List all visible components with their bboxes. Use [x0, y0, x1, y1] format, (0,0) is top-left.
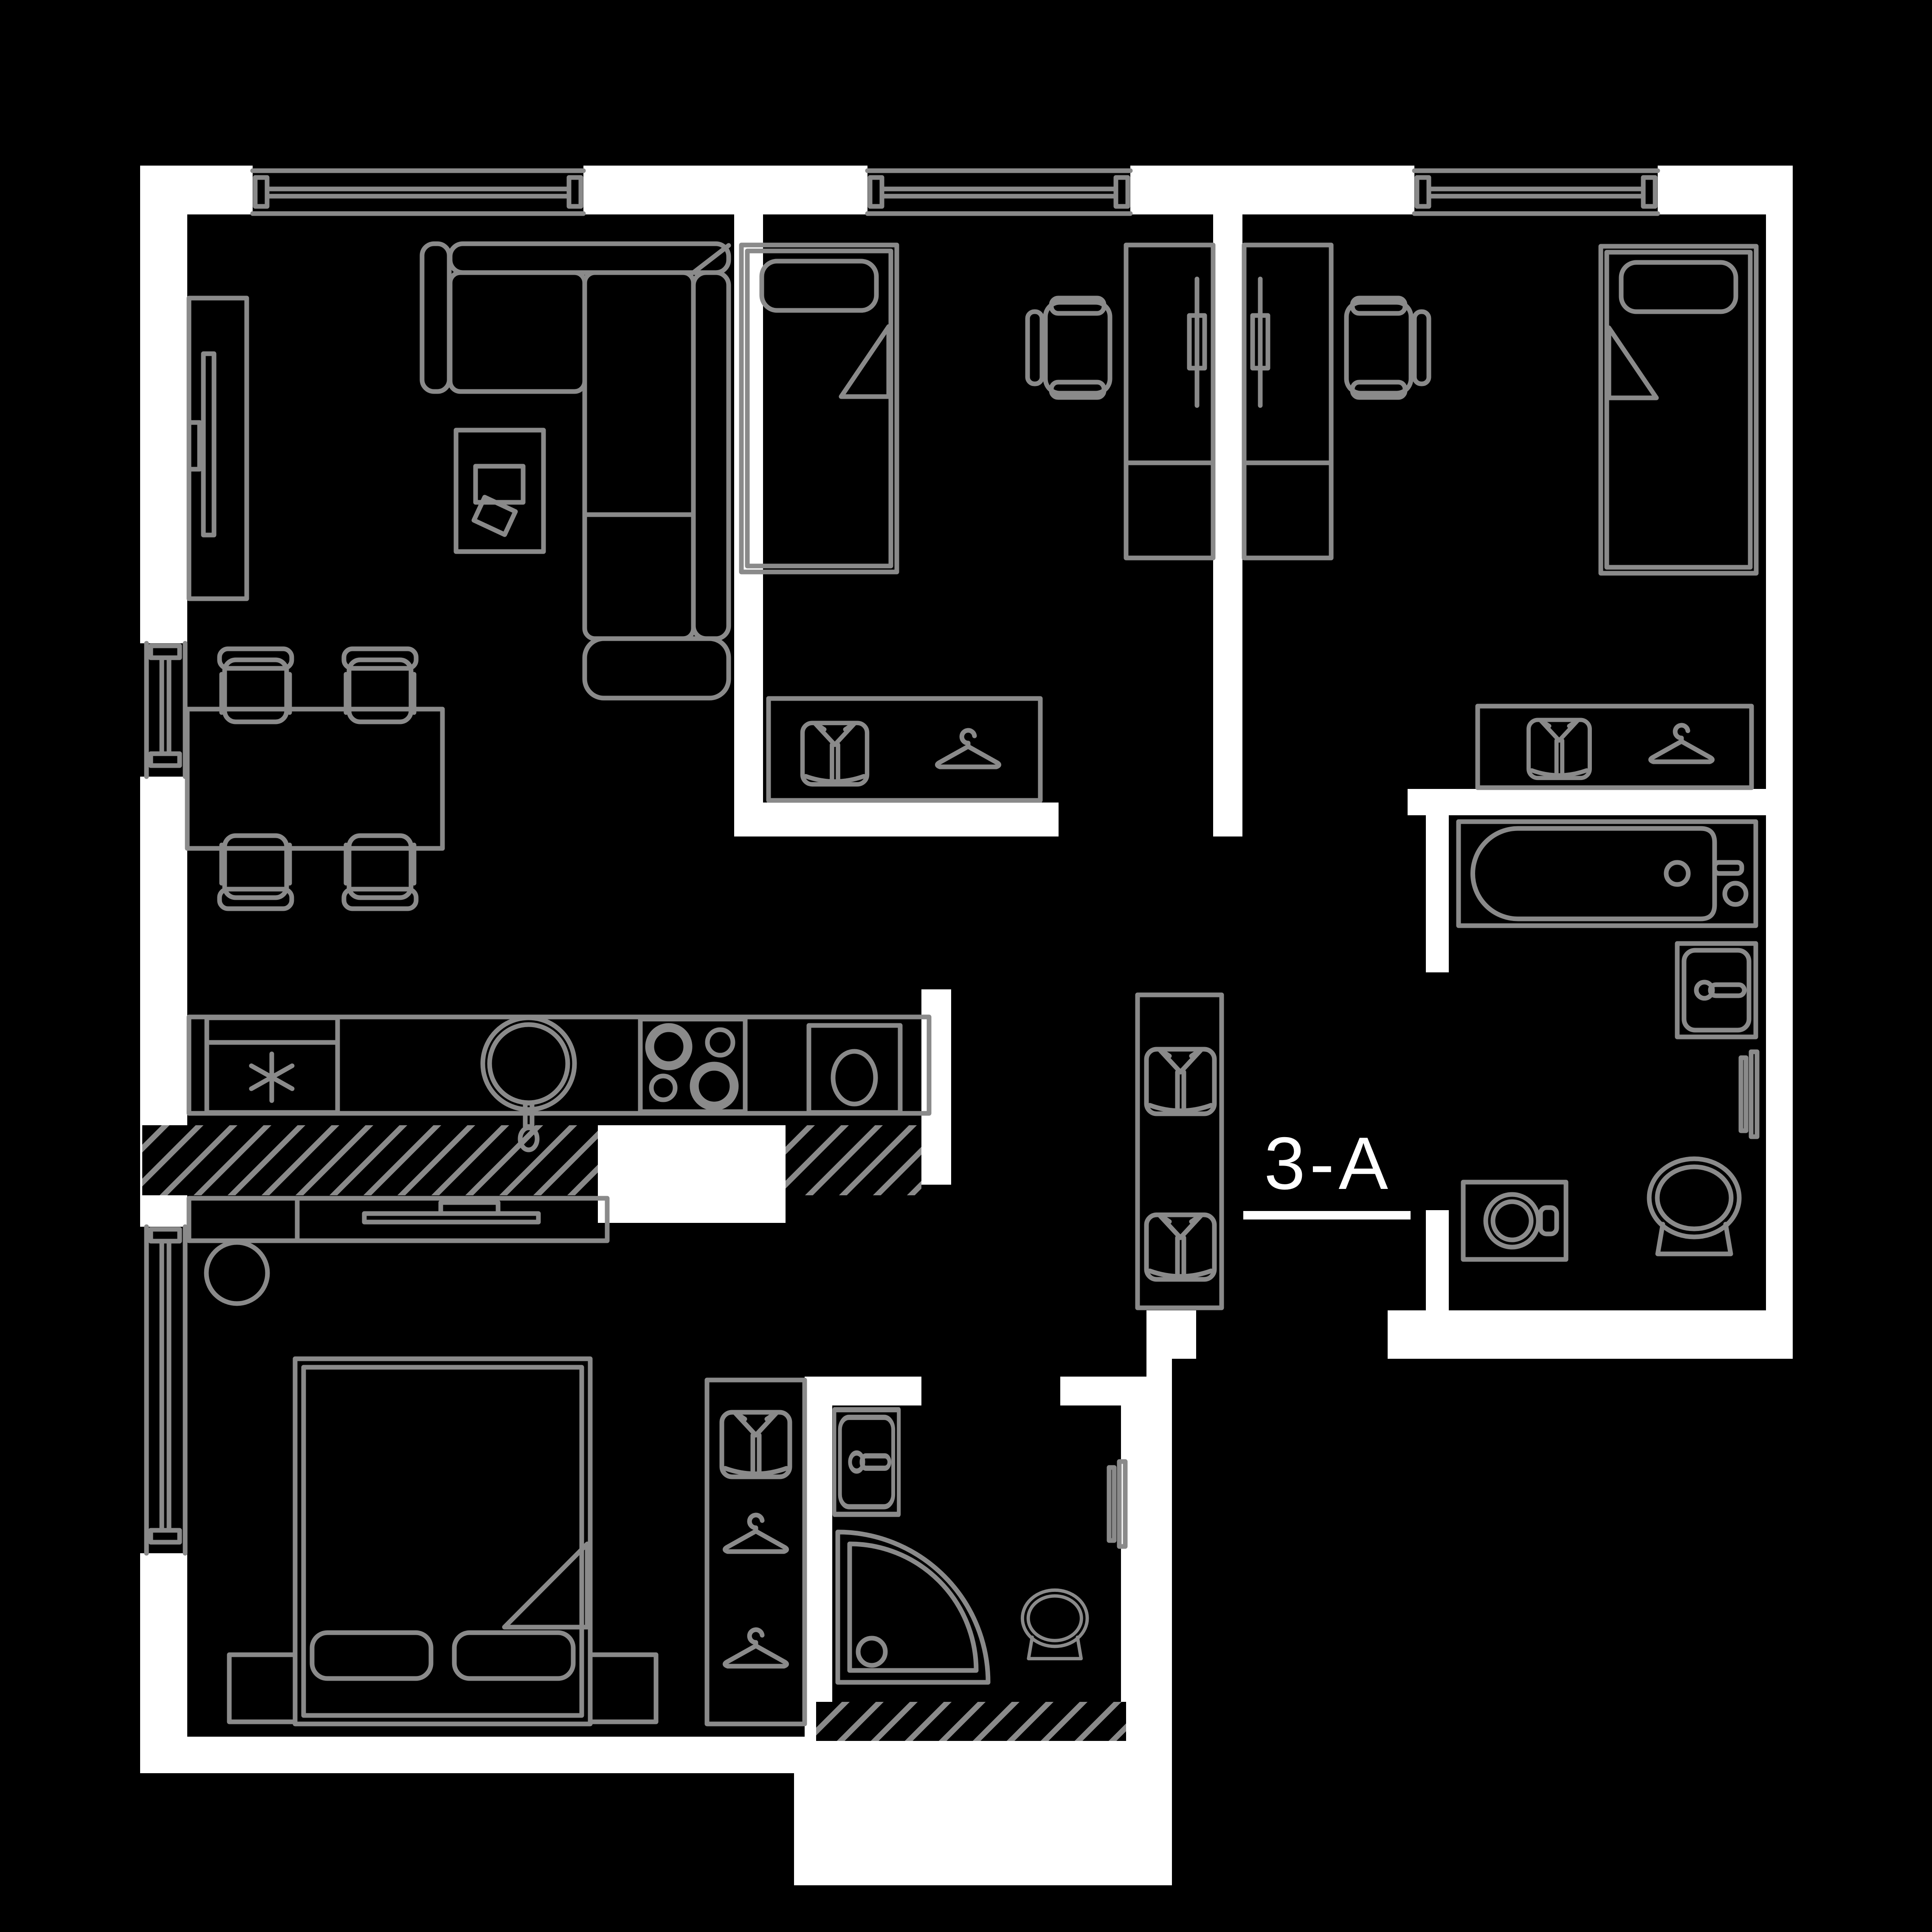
wall-bath2-top-1: [805, 1377, 921, 1405]
wall-corridor-stub: [1146, 1310, 1196, 1359]
wall-right: [1766, 166, 1793, 1359]
hatched-partition-2: [786, 1125, 921, 1195]
unit-label-underline: [1243, 1211, 1411, 1219]
floor-plan-canvas: 3-A: [0, 0, 1932, 1932]
wall-left-1: [140, 166, 187, 643]
hatched-partition-1: [142, 1125, 598, 1195]
wall-top-2: [583, 166, 867, 214]
wall-bath2-left: [805, 1377, 832, 1741]
floor-plan-stage: 3-A: [0, 0, 1932, 1932]
wall-bath1-left-bottom: [1426, 1210, 1449, 1310]
wall-bed2-bottom: [734, 803, 1059, 836]
wall-bath1-left-top: [1426, 815, 1449, 972]
background: [0, 0, 1932, 1932]
wall-bath2-top-2: [1060, 1377, 1146, 1405]
unit-label: 3-A: [1264, 1122, 1392, 1205]
wall-bath1-bottom: [1388, 1310, 1793, 1359]
wall-bottom-left: [140, 1737, 805, 1773]
wall-hatch-pier: [598, 1125, 786, 1223]
wall-bed3-bottom: [1408, 789, 1766, 815]
wall-bottom-block: [794, 1741, 1172, 1885]
wall-bath2-right: [1121, 1405, 1146, 1741]
wall-bed2-bed3: [1213, 214, 1242, 836]
wall-top-3: [1130, 166, 1414, 214]
hatched-partition-3: [816, 1702, 1126, 1741]
